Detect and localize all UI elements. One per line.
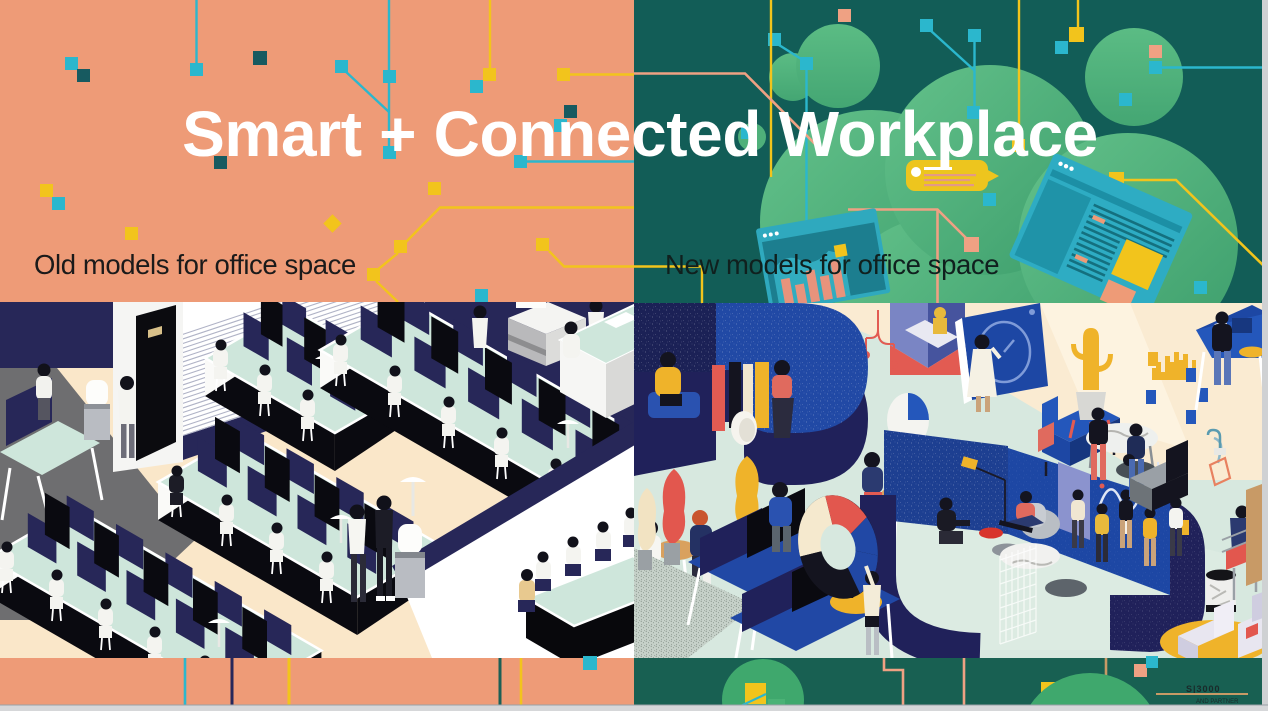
svg-text:AND PARTNER: AND PARTNER	[1196, 699, 1239, 705]
svg-text:Old models for office space: Old models for office space	[34, 249, 356, 280]
svg-text:S|3000: S|3000	[1186, 684, 1221, 694]
svg-text:New models for office space: New models for office space	[665, 249, 999, 280]
svg-text:Smart + Connected Workplace: Smart + Connected Workplace	[182, 98, 1098, 170]
